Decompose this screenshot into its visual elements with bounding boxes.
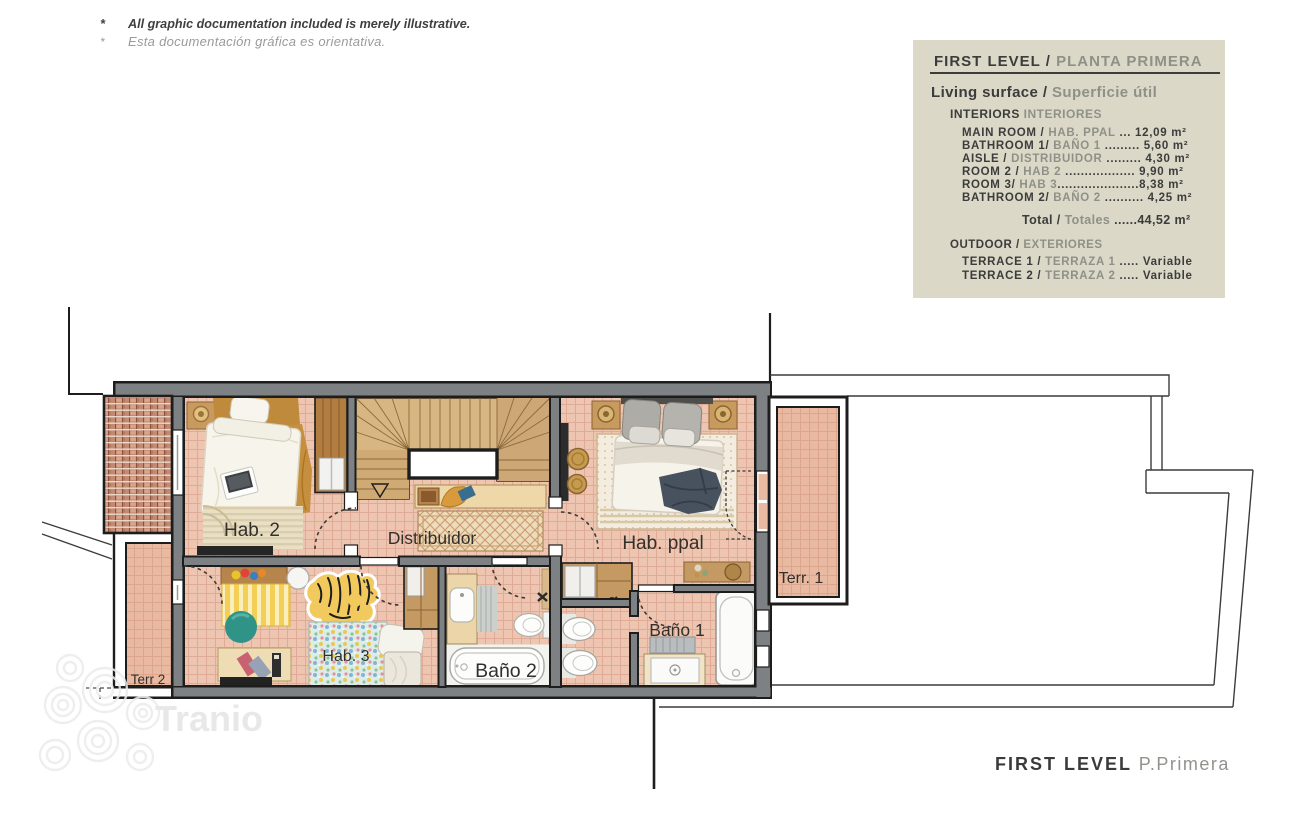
svg-text:Hab. 2: Hab. 2 (224, 520, 280, 541)
svg-text:Hab. 3: Hab. 3 (322, 648, 369, 665)
svg-text:Baño 2: Baño 2 (475, 660, 537, 682)
svg-text:Living surface / Superficie út: Living surface / Superficie útil (931, 84, 1157, 101)
svg-text:Hab. ppal: Hab. ppal (622, 533, 703, 554)
svg-text:*: * (100, 35, 105, 49)
svg-text:FIRST LEVEL P.Primera: FIRST LEVEL P.Primera (995, 754, 1230, 774)
svg-text:BATHROOM 2/ BAÑO 2 ..........: BATHROOM 2/ BAÑO 2 .......... 4,25 m² (962, 191, 1192, 204)
svg-text:Terr. 1: Terr. 1 (779, 570, 824, 587)
svg-text:OUTDOOR / EXTERIORES: OUTDOOR / EXTERIORES (950, 239, 1103, 251)
svg-text:Baño 1: Baño 1 (649, 620, 704, 640)
svg-text:Distribuidor: Distribuidor (388, 528, 477, 548)
svg-text:TERRACE 1 / TERRAZA 1 ..... V: TERRACE 1 / TERRAZA 1 ..... Variable (962, 256, 1193, 268)
svg-text:AISLE / DISTRIBUIDOR .........: AISLE / DISTRIBUIDOR ......... 4,30 m² (962, 153, 1190, 165)
svg-text:ROOM 3/ HAB 3.................: ROOM 3/ HAB 3.....................8,38 m… (962, 179, 1184, 191)
svg-text:BATHROOM 1/ BAÑO 1 ......... 5: BATHROOM 1/ BAÑO 1 ......... 5,60 m² (962, 139, 1188, 152)
svg-text:MAIN ROOM / HAB. PPAL ... 12,: MAIN ROOM / HAB. PPAL ... 12,09 m² (962, 127, 1187, 139)
svg-text:All graphic documentation incl: All graphic documentation included is me… (127, 17, 470, 31)
svg-text:TERRACE 2 / TERRAZA 2 ..... V: TERRACE 2 / TERRAZA 2 ..... Variable (962, 270, 1193, 282)
svg-text:INTERIORS INTERIORES: INTERIORS INTERIORES (950, 107, 1102, 121)
svg-text:FIRST LEVEL / PLANTA PRIMERA: FIRST LEVEL / PLANTA PRIMERA (934, 53, 1203, 70)
svg-text:Total / Totales ......44,52 m²: Total / Totales ......44,52 m² (1022, 213, 1191, 227)
svg-text:Terr 2: Terr 2 (131, 672, 166, 687)
svg-text:*: * (100, 16, 106, 31)
svg-text:ROOM 2 / HAB 2 ...............: ROOM 2 / HAB 2 .................. 9,90 m… (962, 166, 1184, 178)
svg-text:Tranio: Tranio (155, 698, 263, 739)
svg-text:Esta documentación gráfica es: Esta documentación gráfica es orientativ… (128, 34, 386, 49)
